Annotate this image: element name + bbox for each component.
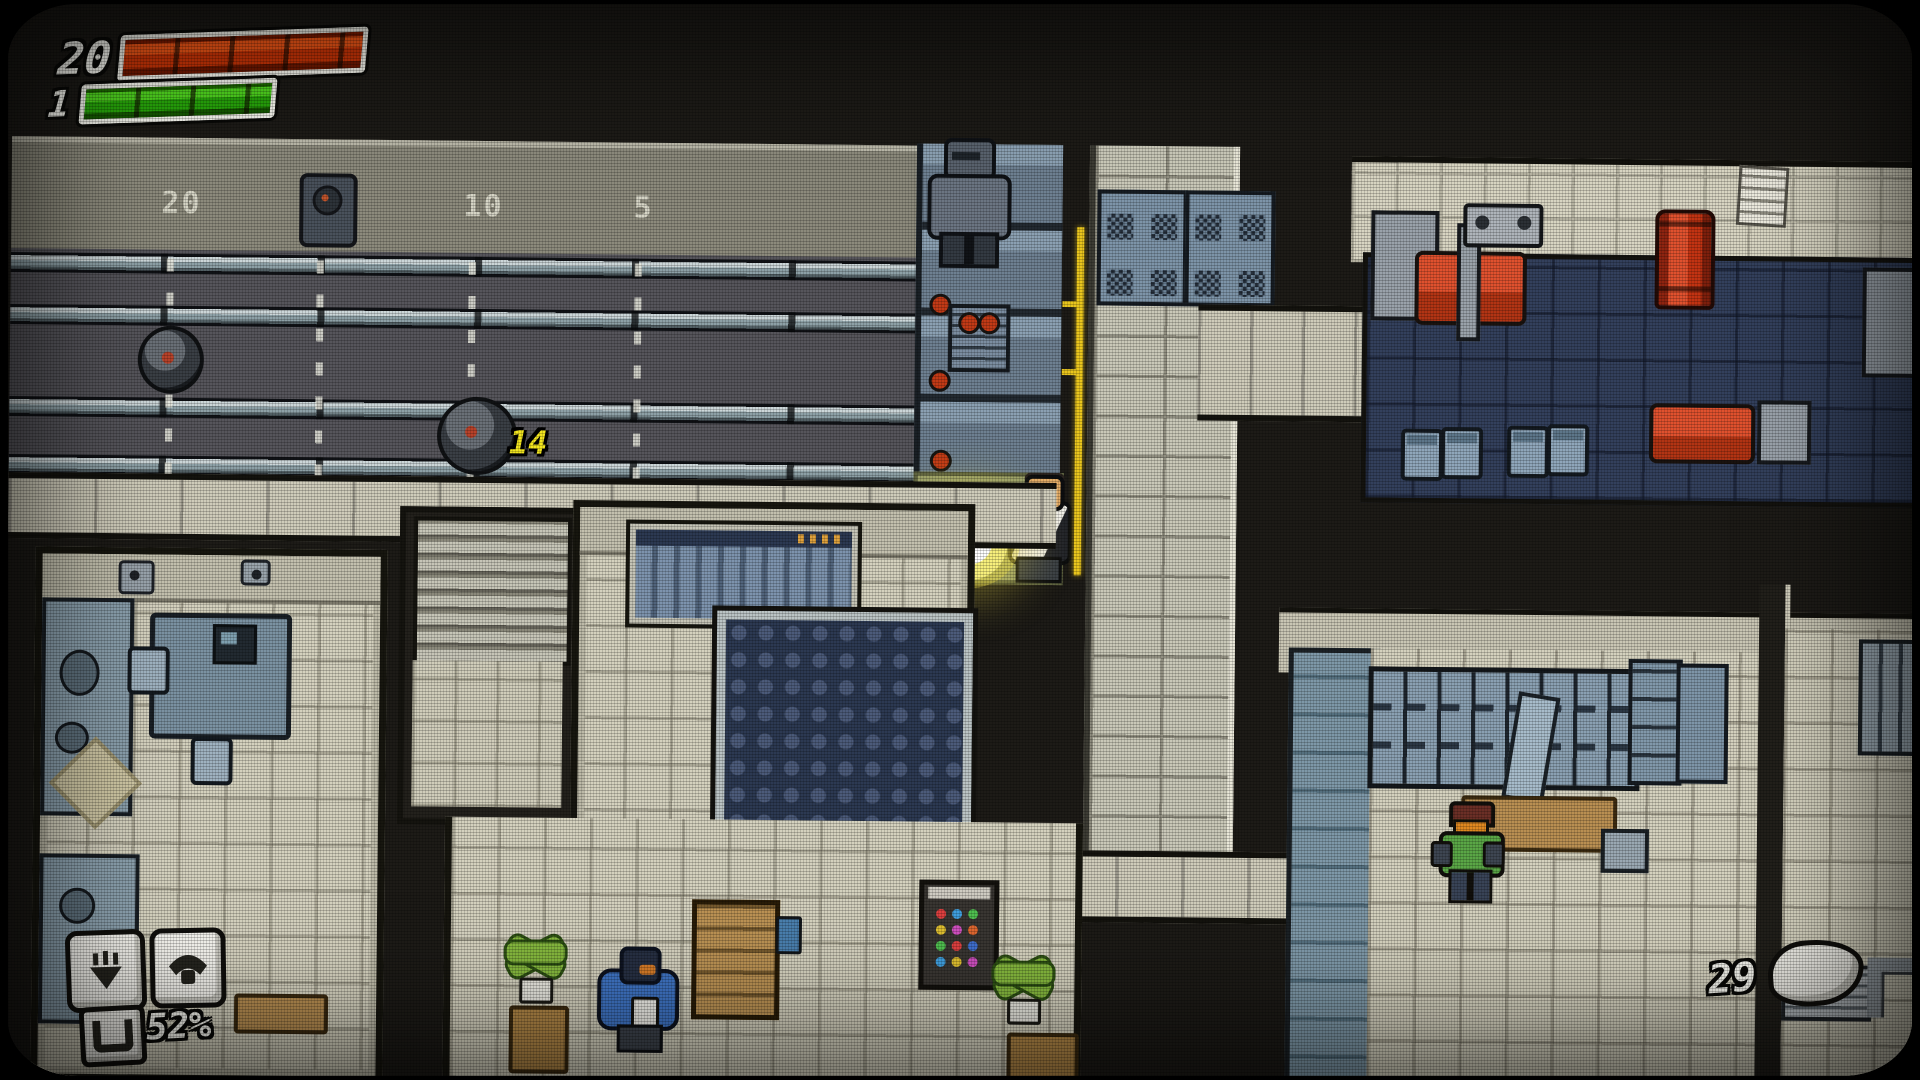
robot-legs <box>939 232 999 269</box>
metal-cabinet <box>1184 190 1275 307</box>
game-world: 20 15 10 5 <box>8 4 1912 1076</box>
gym-chair <box>1507 426 1550 478</box>
drop-item-icon <box>83 948 129 994</box>
console-light <box>958 312 980 334</box>
laser-tick <box>1062 369 1080 375</box>
gym-doorway-floor <box>1197 304 1364 422</box>
booth-button <box>930 450 952 472</box>
computer-monitor <box>213 624 257 664</box>
training-room <box>570 500 976 868</box>
lat-pulldown-machine <box>1862 267 1912 378</box>
soldier-character <box>1438 801 1497 900</box>
player-legs <box>1016 557 1062 583</box>
office-chair <box>127 646 170 694</box>
character-face <box>639 965 655 975</box>
office-chair <box>190 737 233 785</box>
indicator-lights <box>798 534 842 543</box>
wall-pipe <box>1867 958 1912 1019</box>
radiator <box>1781 965 1872 1022</box>
gym-chair <box>1441 427 1484 479</box>
potted-plant <box>501 929 566 1006</box>
item-slot-drop[interactable] <box>65 929 148 1014</box>
seated-character <box>591 946 680 1047</box>
distance-marker: 20 <box>161 186 201 221</box>
distance-marker: 10 <box>463 189 503 224</box>
wall-poster <box>1736 165 1790 228</box>
range-back-wall: 20 15 10 5 <box>11 136 1058 265</box>
stairwell <box>397 506 590 826</box>
punching-drum <box>1654 209 1715 310</box>
phone-icon <box>165 948 212 989</box>
red-bench <box>1649 403 1756 464</box>
wall-panel <box>240 559 270 585</box>
game-screen: 20 15 10 5 <box>0 0 1920 1080</box>
character-legs <box>617 1024 663 1052</box>
locker-room <box>1214 563 1912 1076</box>
wood-bench <box>234 993 328 1034</box>
gym-post <box>1757 400 1812 465</box>
potted-plant <box>989 950 1054 1027</box>
tall-locker <box>1675 664 1728 785</box>
robot-visor <box>952 152 980 160</box>
robot-body <box>927 174 1012 241</box>
wall-switch <box>776 916 802 954</box>
security-camera <box>118 560 154 594</box>
stairs <box>413 516 573 666</box>
laser-line <box>1074 227 1085 575</box>
snack-vending-machine <box>918 880 999 991</box>
soldier-legs <box>1448 869 1492 903</box>
distance-marker: 5 <box>633 191 653 226</box>
locker-row <box>1367 666 1640 791</box>
ammo-clip-indicator[interactable] <box>78 1004 147 1067</box>
office-desk <box>149 613 292 740</box>
crt-screen: 20 15 10 5 <box>8 4 1912 1076</box>
soldier-arm <box>1431 841 1453 867</box>
microscope <box>59 650 99 696</box>
soldier-arm <box>1483 841 1505 867</box>
target-robot <box>437 397 518 476</box>
wall-turret-robot <box>299 173 358 248</box>
storage-box <box>1601 829 1649 874</box>
far-lockers <box>1858 639 1912 756</box>
console-light <box>978 312 1000 334</box>
wood-chair <box>508 1005 569 1074</box>
snack-items <box>936 909 946 919</box>
target-robot <box>137 325 204 394</box>
booth-console <box>948 304 1011 373</box>
wooden-vending-machine <box>691 899 780 1020</box>
booth-button <box>929 370 951 392</box>
item-slot-phone[interactable] <box>149 927 226 1008</box>
magazine-icon <box>92 1019 134 1053</box>
laser-tick <box>1062 301 1080 307</box>
lab-device <box>59 888 95 924</box>
metal-cabinet <box>1096 189 1187 306</box>
damage-number: 14 <box>509 423 548 461</box>
gym-chair <box>1547 424 1590 476</box>
shelf-unit <box>1627 659 1682 786</box>
stair-landing <box>411 660 563 808</box>
corridor-cabinets <box>1097 189 1270 301</box>
wood-bench <box>1006 1033 1079 1076</box>
boombox <box>1463 203 1543 248</box>
gym-chair <box>1401 429 1444 481</box>
range-robot <box>919 138 1014 265</box>
